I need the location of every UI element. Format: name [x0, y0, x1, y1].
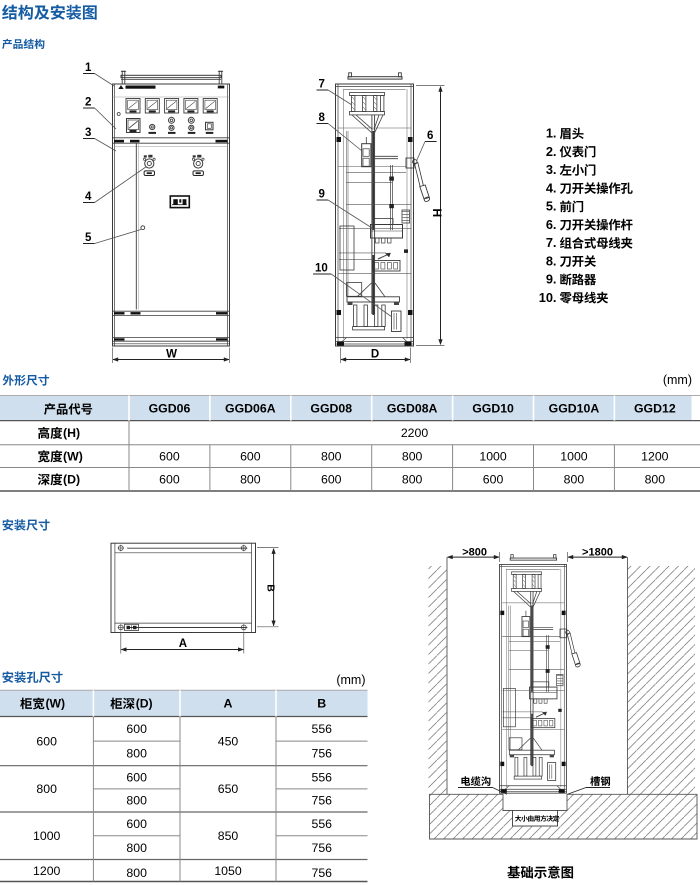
svg-text:1200: 1200 [641, 449, 669, 463]
svg-text:600: 600 [36, 734, 57, 748]
svg-text:600: 600 [321, 473, 342, 487]
svg-text:(mm): (mm) [336, 673, 365, 687]
svg-text:>800: >800 [462, 547, 487, 559]
svg-text:2: 2 [85, 97, 91, 109]
svg-text:A: A [224, 697, 233, 711]
svg-text:600: 600 [126, 722, 147, 736]
svg-text:800: 800 [126, 794, 147, 808]
svg-text:556: 556 [311, 817, 332, 831]
svg-text:10.: 10. [539, 290, 557, 305]
svg-text:800: 800 [126, 841, 147, 855]
svg-text:4: 4 [85, 191, 92, 203]
svg-text:(H): (H) [63, 426, 80, 440]
svg-text:756: 756 [311, 841, 332, 855]
svg-text:600: 600 [126, 771, 147, 785]
svg-text:10: 10 [315, 263, 328, 275]
svg-text:GGD06: GGD06 [149, 401, 191, 415]
svg-text:GGD08: GGD08 [310, 401, 352, 415]
svg-text:800: 800 [126, 866, 147, 880]
svg-text:600: 600 [159, 473, 180, 487]
svg-text:B: B [317, 697, 326, 711]
svg-text:800: 800 [126, 747, 147, 761]
svg-text:GGD10: GGD10 [472, 401, 514, 415]
svg-text:5.: 5. [546, 199, 557, 214]
svg-text:2.: 2. [546, 144, 557, 159]
svg-text:650: 650 [218, 782, 239, 796]
svg-text:800: 800 [564, 473, 585, 487]
svg-text:3.: 3. [546, 162, 557, 177]
svg-text:7.: 7. [546, 235, 557, 250]
svg-text:556: 556 [311, 771, 332, 785]
svg-text:600: 600 [126, 817, 147, 831]
svg-text:1: 1 [85, 62, 92, 74]
svg-text:600: 600 [483, 473, 504, 487]
svg-text:8.: 8. [546, 253, 557, 268]
svg-text:8: 8 [319, 112, 326, 124]
svg-text:756: 756 [311, 747, 332, 761]
svg-text:800: 800 [240, 473, 261, 487]
svg-text:800: 800 [36, 782, 57, 796]
svg-text:1000: 1000 [33, 829, 61, 843]
svg-text:A: A [179, 638, 187, 650]
svg-text:W: W [166, 349, 177, 361]
svg-text:1050: 1050 [214, 864, 242, 878]
svg-text:1000: 1000 [560, 449, 588, 463]
svg-text:1.: 1. [546, 126, 557, 141]
svg-text:556: 556 [311, 722, 332, 736]
svg-text:(D): (D) [136, 697, 153, 711]
svg-text:(W): (W) [46, 697, 66, 711]
svg-text:2200: 2200 [401, 426, 429, 440]
svg-text:800: 800 [402, 449, 423, 463]
svg-text:800: 800 [402, 473, 423, 487]
svg-text:756: 756 [311, 866, 332, 880]
svg-text:4.: 4. [546, 180, 557, 195]
svg-text:5: 5 [85, 232, 92, 244]
svg-text:756: 756 [311, 794, 332, 808]
svg-text:800: 800 [645, 473, 666, 487]
svg-text:GGD08A: GGD08A [387, 401, 438, 415]
svg-text:6: 6 [427, 130, 433, 142]
svg-text:850: 850 [218, 829, 239, 843]
svg-text:9: 9 [319, 189, 325, 201]
svg-text:(D): (D) [63, 473, 80, 487]
svg-text:D: D [371, 349, 379, 361]
svg-text:>1800: >1800 [582, 547, 613, 559]
svg-text:600: 600 [240, 449, 261, 463]
svg-text:(W): (W) [63, 450, 83, 464]
svg-text:450: 450 [218, 734, 239, 748]
svg-text:GGD12: GGD12 [634, 401, 676, 415]
svg-text:1000: 1000 [479, 449, 507, 463]
svg-text:9.: 9. [546, 272, 557, 287]
svg-text:(mm): (mm) [663, 373, 692, 387]
svg-text:GGD10A: GGD10A [549, 401, 600, 415]
svg-text:B: B [264, 584, 276, 592]
svg-text:6.: 6. [546, 217, 557, 232]
svg-text:3: 3 [85, 127, 91, 139]
svg-text:7: 7 [319, 79, 325, 91]
svg-text:1200: 1200 [33, 864, 61, 878]
svg-text:H: H [430, 208, 444, 217]
svg-text:800: 800 [321, 449, 342, 463]
svg-text:GGD06A: GGD06A [225, 401, 276, 415]
svg-text:600: 600 [159, 449, 180, 463]
